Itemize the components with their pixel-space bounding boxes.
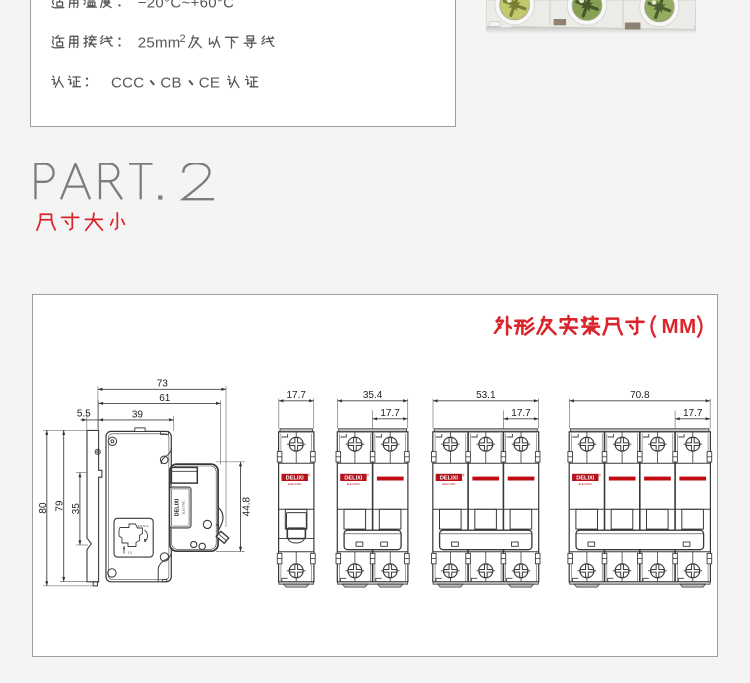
svg-text:MM: MM xyxy=(662,315,697,338)
svg-text:®: ® xyxy=(599,473,602,477)
svg-text:DELIXI: DELIXI xyxy=(344,476,362,482)
svg-text:®: ® xyxy=(308,473,311,477)
svg-text:DELIXI: DELIXI xyxy=(440,476,458,482)
svg-text:17.7: 17.7 xyxy=(286,390,306,401)
svg-text:17.7: 17.7 xyxy=(511,408,531,419)
svg-text:−20°C~+60°C: −20°C~+60°C xyxy=(138,0,235,11)
svg-text:ELECTRIC: ELECTRIC xyxy=(288,482,301,486)
svg-text:DELIXI: DELIXI xyxy=(175,498,181,516)
svg-text:ELECTRIC: ELECTRIC xyxy=(347,482,360,486)
svg-text:35.4: 35.4 xyxy=(363,390,383,401)
svg-text:CE: CE xyxy=(199,74,220,91)
svg-text:1.5: 1.5 xyxy=(128,551,133,555)
svg-text:17.7: 17.7 xyxy=(683,408,703,419)
svg-text:53.1: 53.1 xyxy=(476,390,496,401)
svg-text:5.5: 5.5 xyxy=(77,408,91,419)
svg-text:ELECTRIC: ELECTRIC xyxy=(182,501,186,515)
svg-text:44.8: 44.8 xyxy=(242,496,253,516)
svg-text:73: 73 xyxy=(157,379,169,390)
svg-text:17.7: 17.7 xyxy=(380,408,400,419)
svg-text:79: 79 xyxy=(55,500,66,512)
svg-text:70.8: 70.8 xyxy=(630,390,650,401)
svg-text:2.5 N·m: 2.5 N·m xyxy=(138,524,149,528)
svg-text:2: 2 xyxy=(180,33,186,45)
svg-text:CB: CB xyxy=(160,74,181,91)
svg-text:®: ® xyxy=(462,473,465,477)
svg-text:35: 35 xyxy=(71,503,82,515)
svg-text:DELIXI: DELIXI xyxy=(286,476,304,482)
svg-text:39: 39 xyxy=(132,409,144,420)
svg-text:DELIXI: DELIXI xyxy=(576,476,594,482)
svg-text:®: ® xyxy=(367,473,370,477)
svg-text:CCC: CCC xyxy=(111,74,144,91)
svg-text:ELECTRIC: ELECTRIC xyxy=(579,482,592,486)
svg-text:61: 61 xyxy=(159,393,171,404)
svg-text:ELECTRIC: ELECTRIC xyxy=(442,482,455,486)
svg-text:25mm: 25mm xyxy=(138,34,181,51)
svg-text:80: 80 xyxy=(38,502,49,514)
